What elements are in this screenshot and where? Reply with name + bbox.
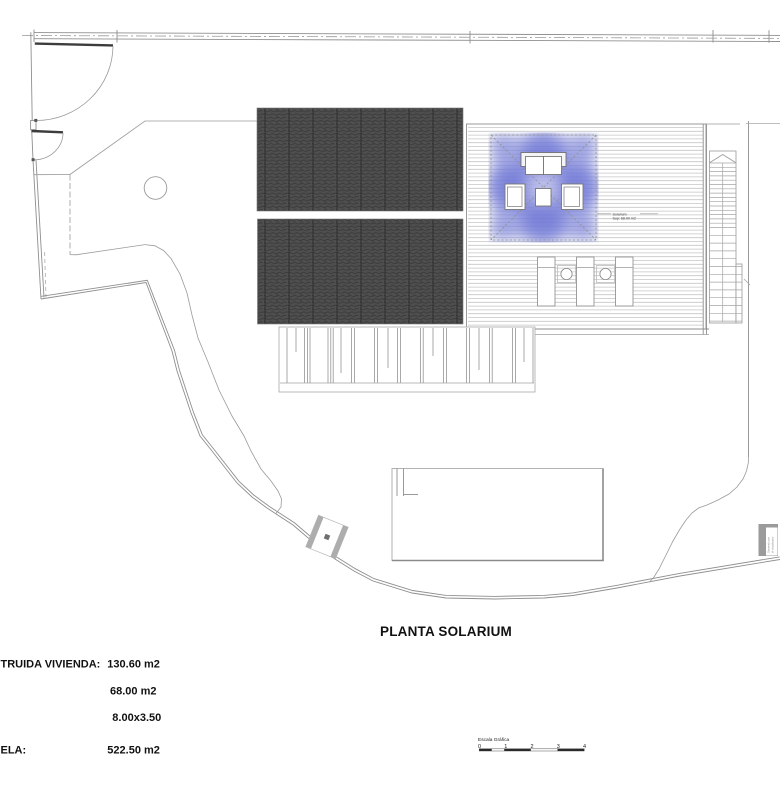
svg-text:8.00x3.50: 8.00x3.50 [112, 712, 161, 724]
svg-text:Escala Gráfica: Escala Gráfica [478, 737, 510, 743]
svg-text:68.00 m2: 68.00 m2 [110, 685, 156, 697]
svg-text:130.60 m2: 130.60 m2 [107, 659, 160, 671]
svg-text:Sup: 68.00 m2: Sup: 68.00 m2 [613, 217, 636, 221]
svg-text:TRUIDA VIVIENDA:: TRUIDA VIVIENDA: [1, 659, 101, 671]
svg-text:ELA:: ELA: [1, 744, 27, 756]
svg-text:PLANTA SOLARIUM: PLANTA SOLARIUM [380, 624, 512, 639]
svg-text:el visualizador: el visualizador [771, 536, 775, 553]
svg-text:Generado por: Generado por [767, 537, 771, 553]
svg-text:522.50 m2: 522.50 m2 [107, 744, 160, 756]
